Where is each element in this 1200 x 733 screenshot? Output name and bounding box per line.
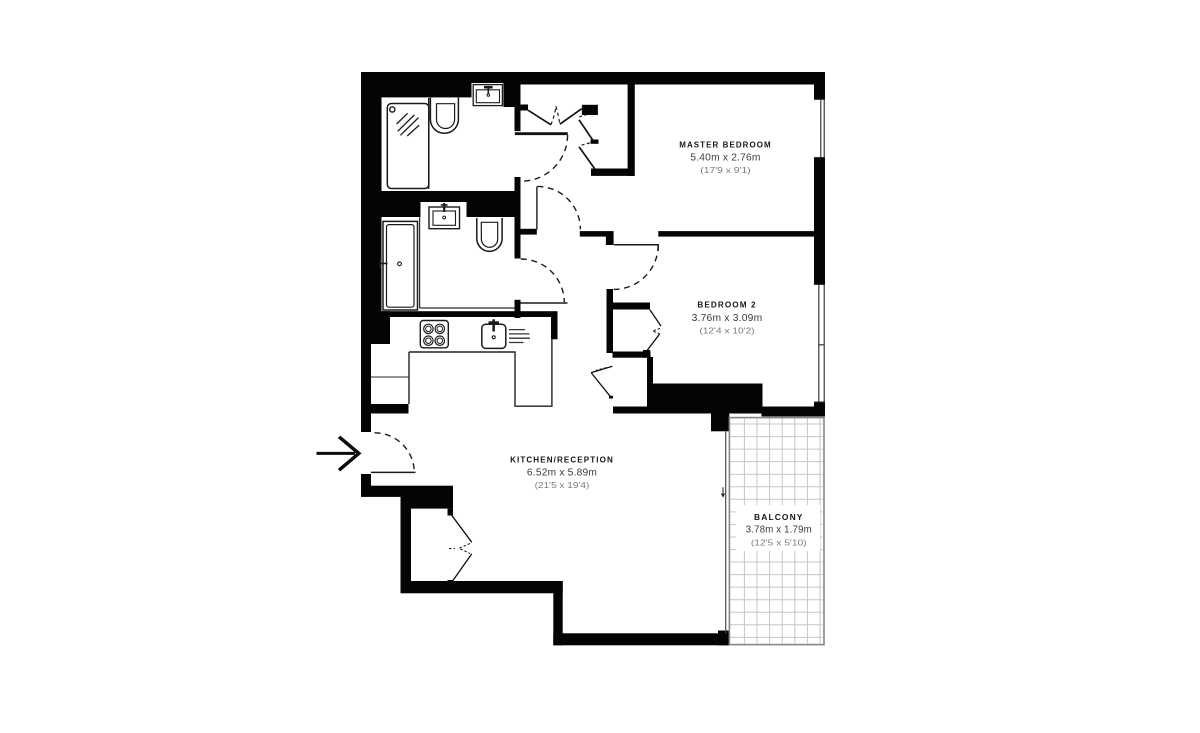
svg-text:(17'9 x 9'1): (17'9 x 9'1): [700, 165, 751, 175]
svg-text:(12'5 x 5'10): (12'5 x 5'10): [751, 537, 807, 547]
svg-text:5.40m x 2.76m: 5.40m x 2.76m: [690, 152, 760, 163]
svg-text:(12'4 x 10'2): (12'4 x 10'2): [699, 326, 755, 336]
svg-text:KITCHEN/RECEPTION: KITCHEN/RECEPTION: [510, 456, 614, 465]
svg-text:BALCONY: BALCONY: [754, 513, 804, 522]
svg-text:3.76m x 3.09m: 3.76m x 3.09m: [692, 313, 763, 324]
svg-text:6.52m x 5.89m: 6.52m x 5.89m: [527, 468, 597, 479]
svg-text:BEDROOM 2: BEDROOM 2: [697, 301, 756, 310]
svg-text:(21'5 x 19'4): (21'5 x 19'4): [535, 480, 590, 490]
svg-text:MASTER BEDROOM: MASTER BEDROOM: [679, 141, 772, 150]
svg-text:3.78m x 1.79m: 3.78m x 1.79m: [746, 525, 812, 536]
